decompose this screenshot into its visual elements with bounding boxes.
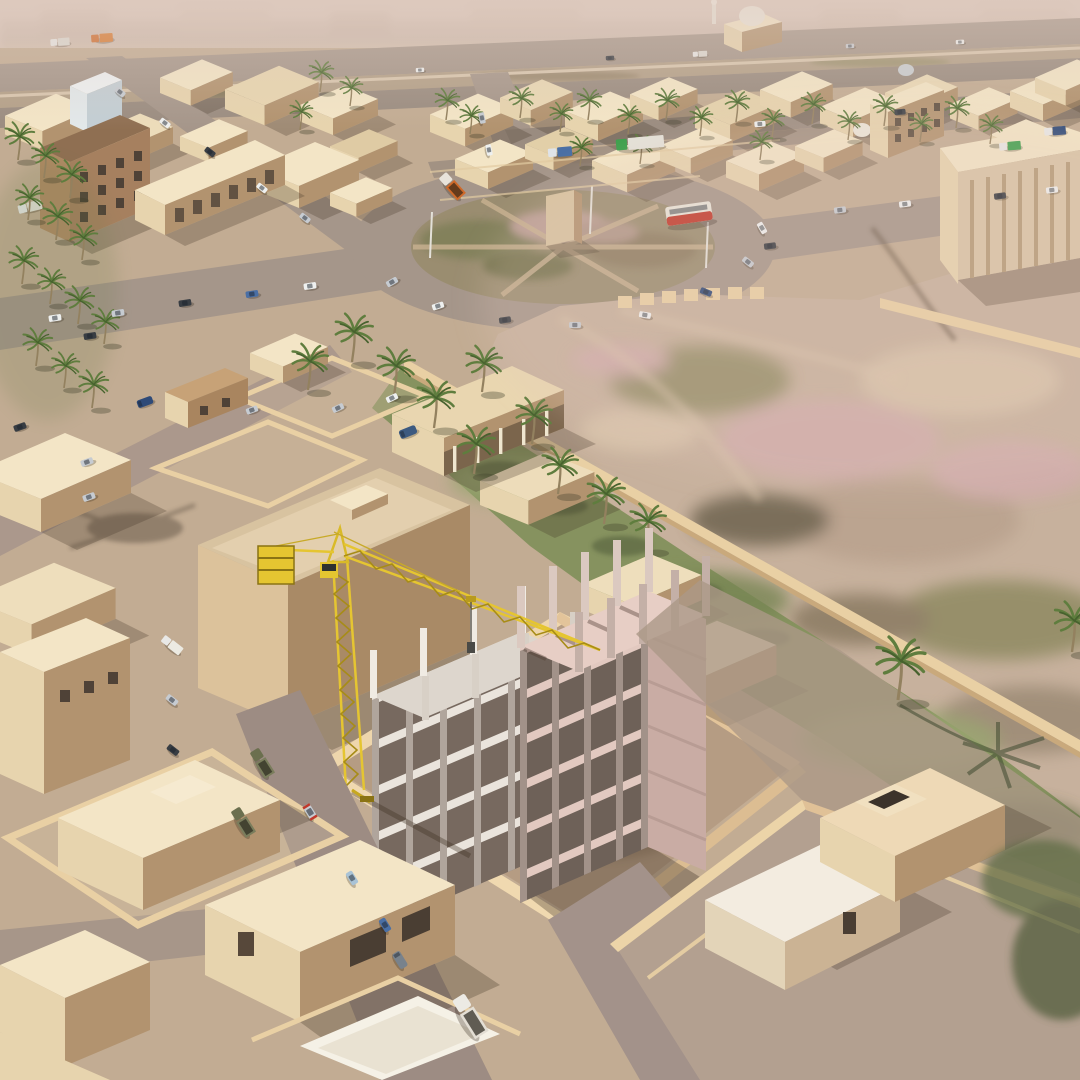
doorway [843, 912, 856, 934]
doorway [238, 932, 254, 956]
hook-block [467, 642, 475, 653]
desert-city-aerial [0, 0, 1080, 1080]
scene-render [0, 0, 1080, 1080]
left-edge-building [0, 618, 130, 794]
counterweight [258, 546, 294, 584]
trolley [466, 596, 476, 602]
